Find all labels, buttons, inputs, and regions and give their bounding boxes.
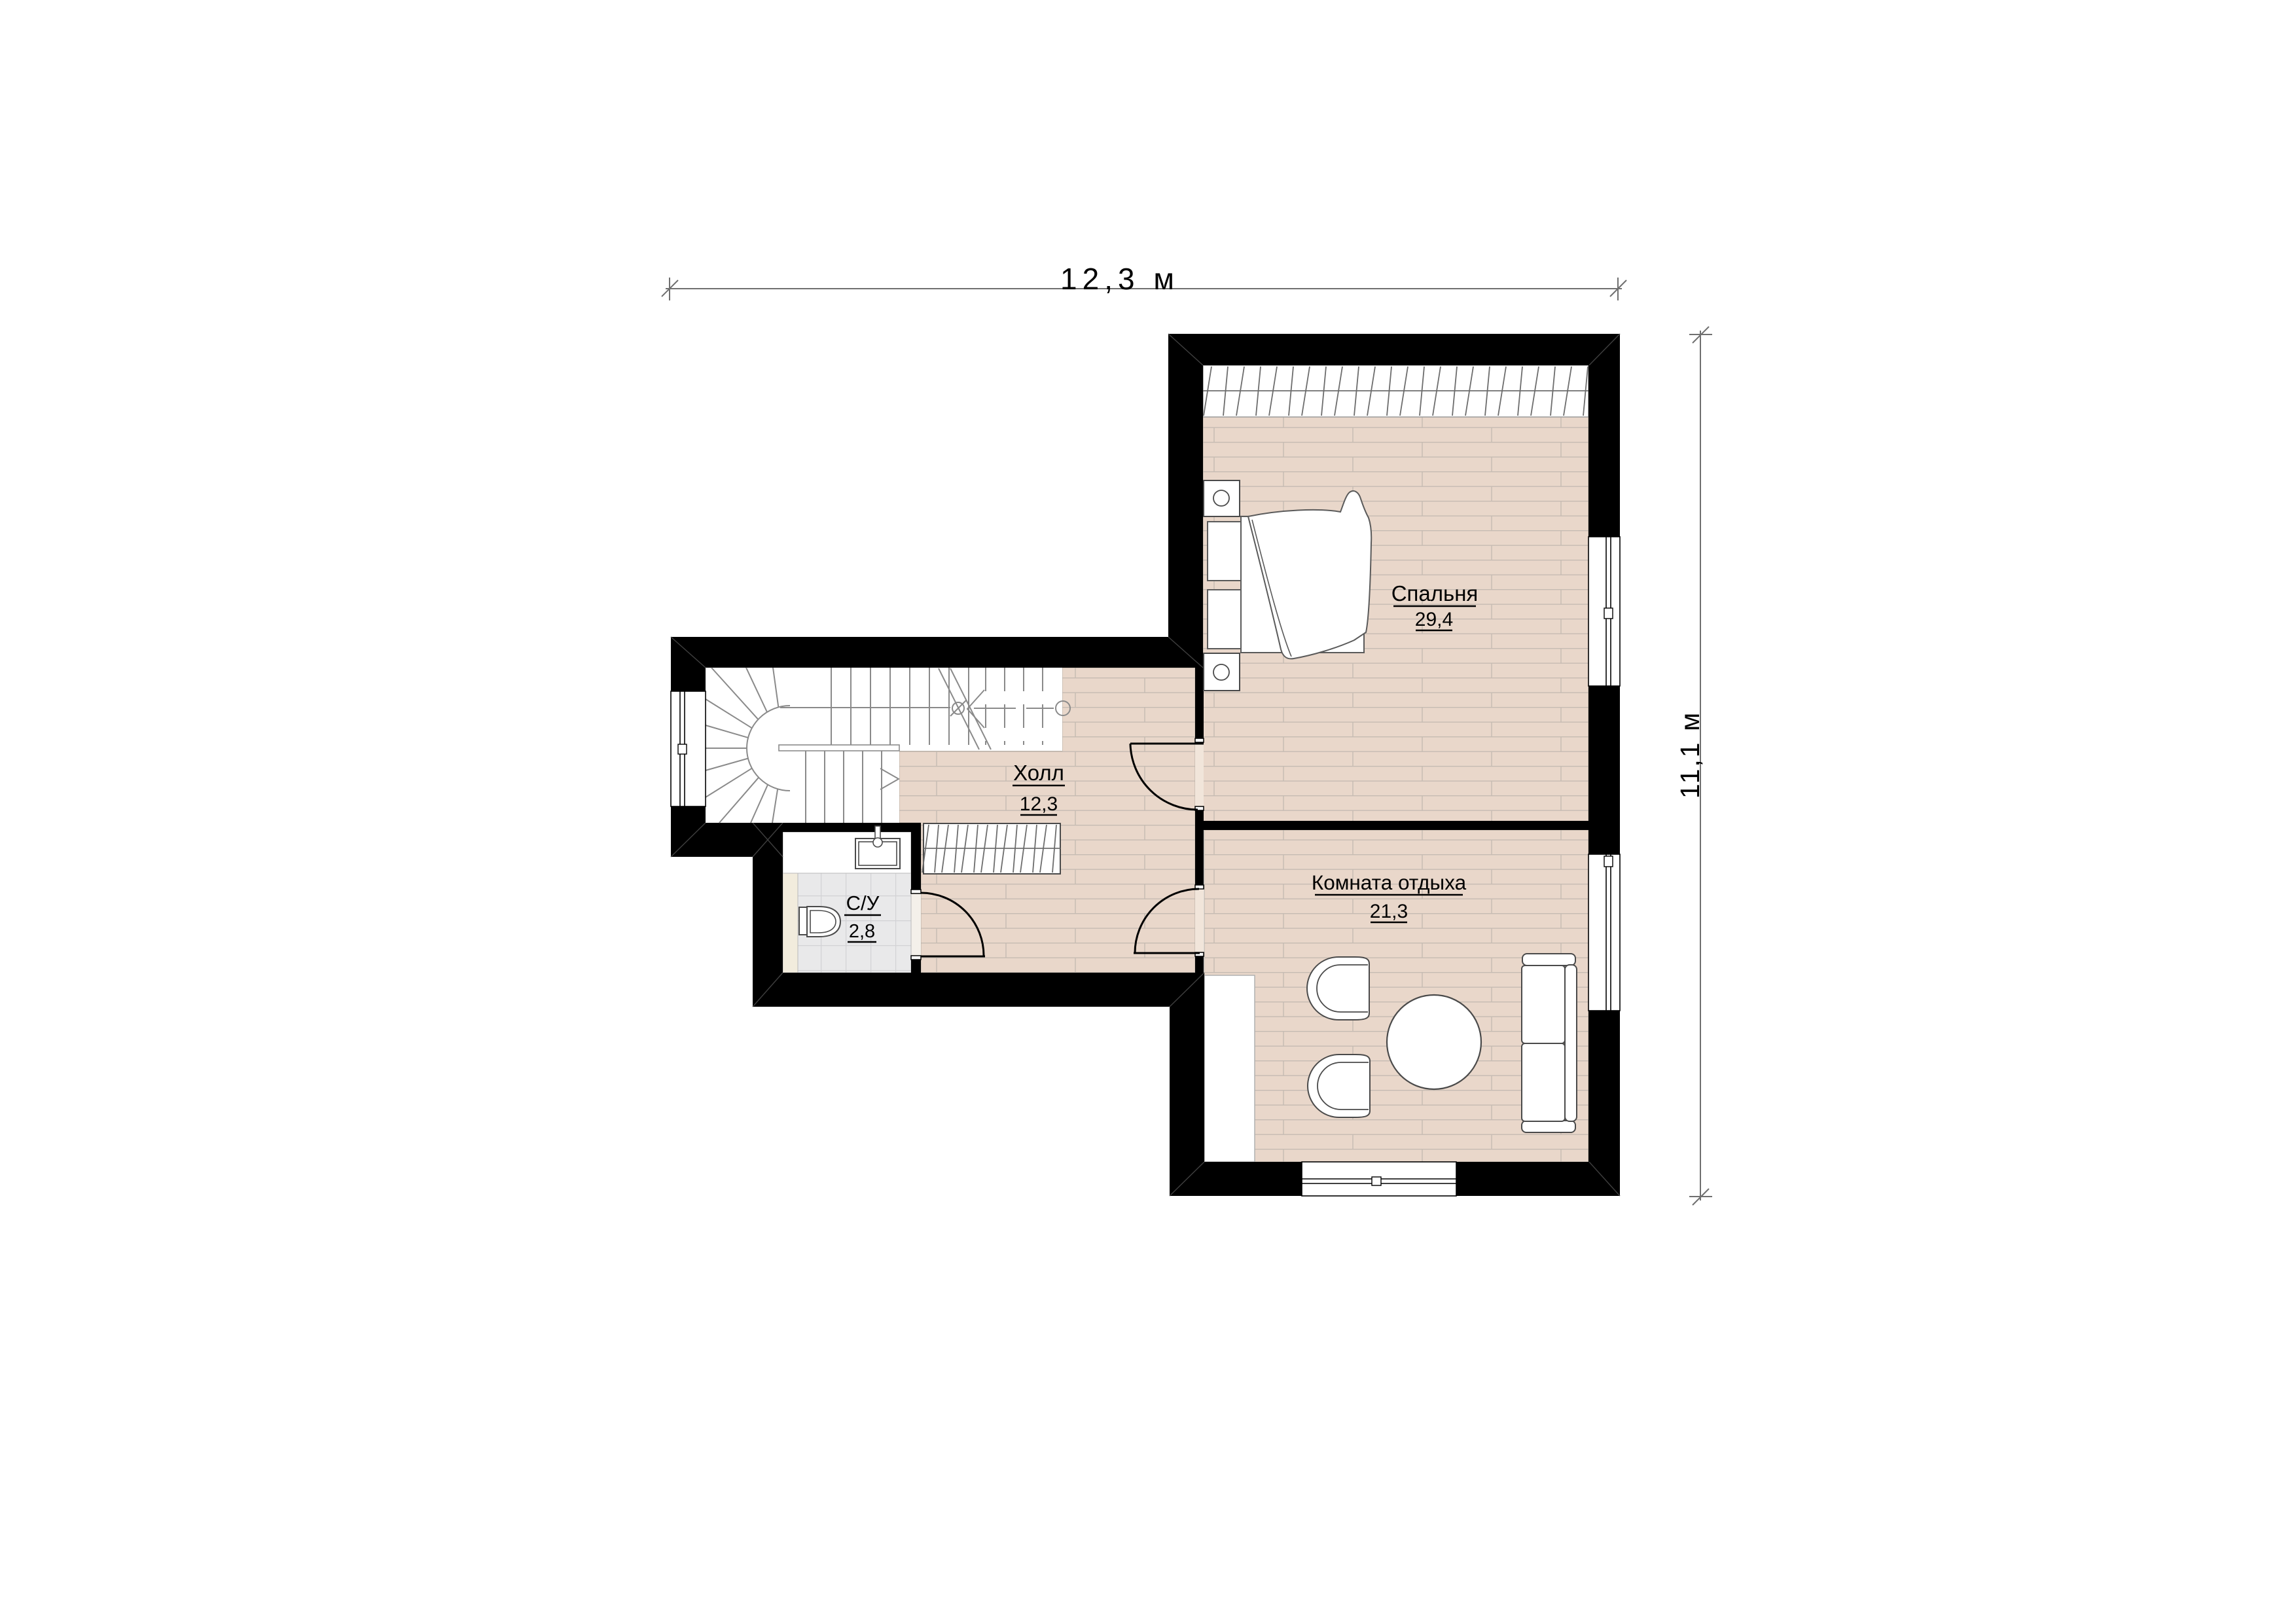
svg-text:29,4: 29,4 — [1415, 609, 1453, 630]
svg-text:21,3: 21,3 — [1370, 901, 1408, 922]
svg-text:Холл: Холл — [1013, 761, 1064, 785]
svg-text:Спальня: Спальня — [1391, 581, 1479, 605]
svg-text:12,3 м: 12,3 м — [1060, 262, 1179, 296]
svg-text:Комната отдыха: Комната отдыха — [1312, 871, 1467, 894]
svg-text:С/У: С/У — [846, 892, 880, 914]
svg-text:11,1 м: 11,1 м — [1675, 711, 1705, 799]
svg-text:2,8: 2,8 — [849, 921, 875, 942]
svg-text:12,3: 12,3 — [1020, 793, 1058, 815]
